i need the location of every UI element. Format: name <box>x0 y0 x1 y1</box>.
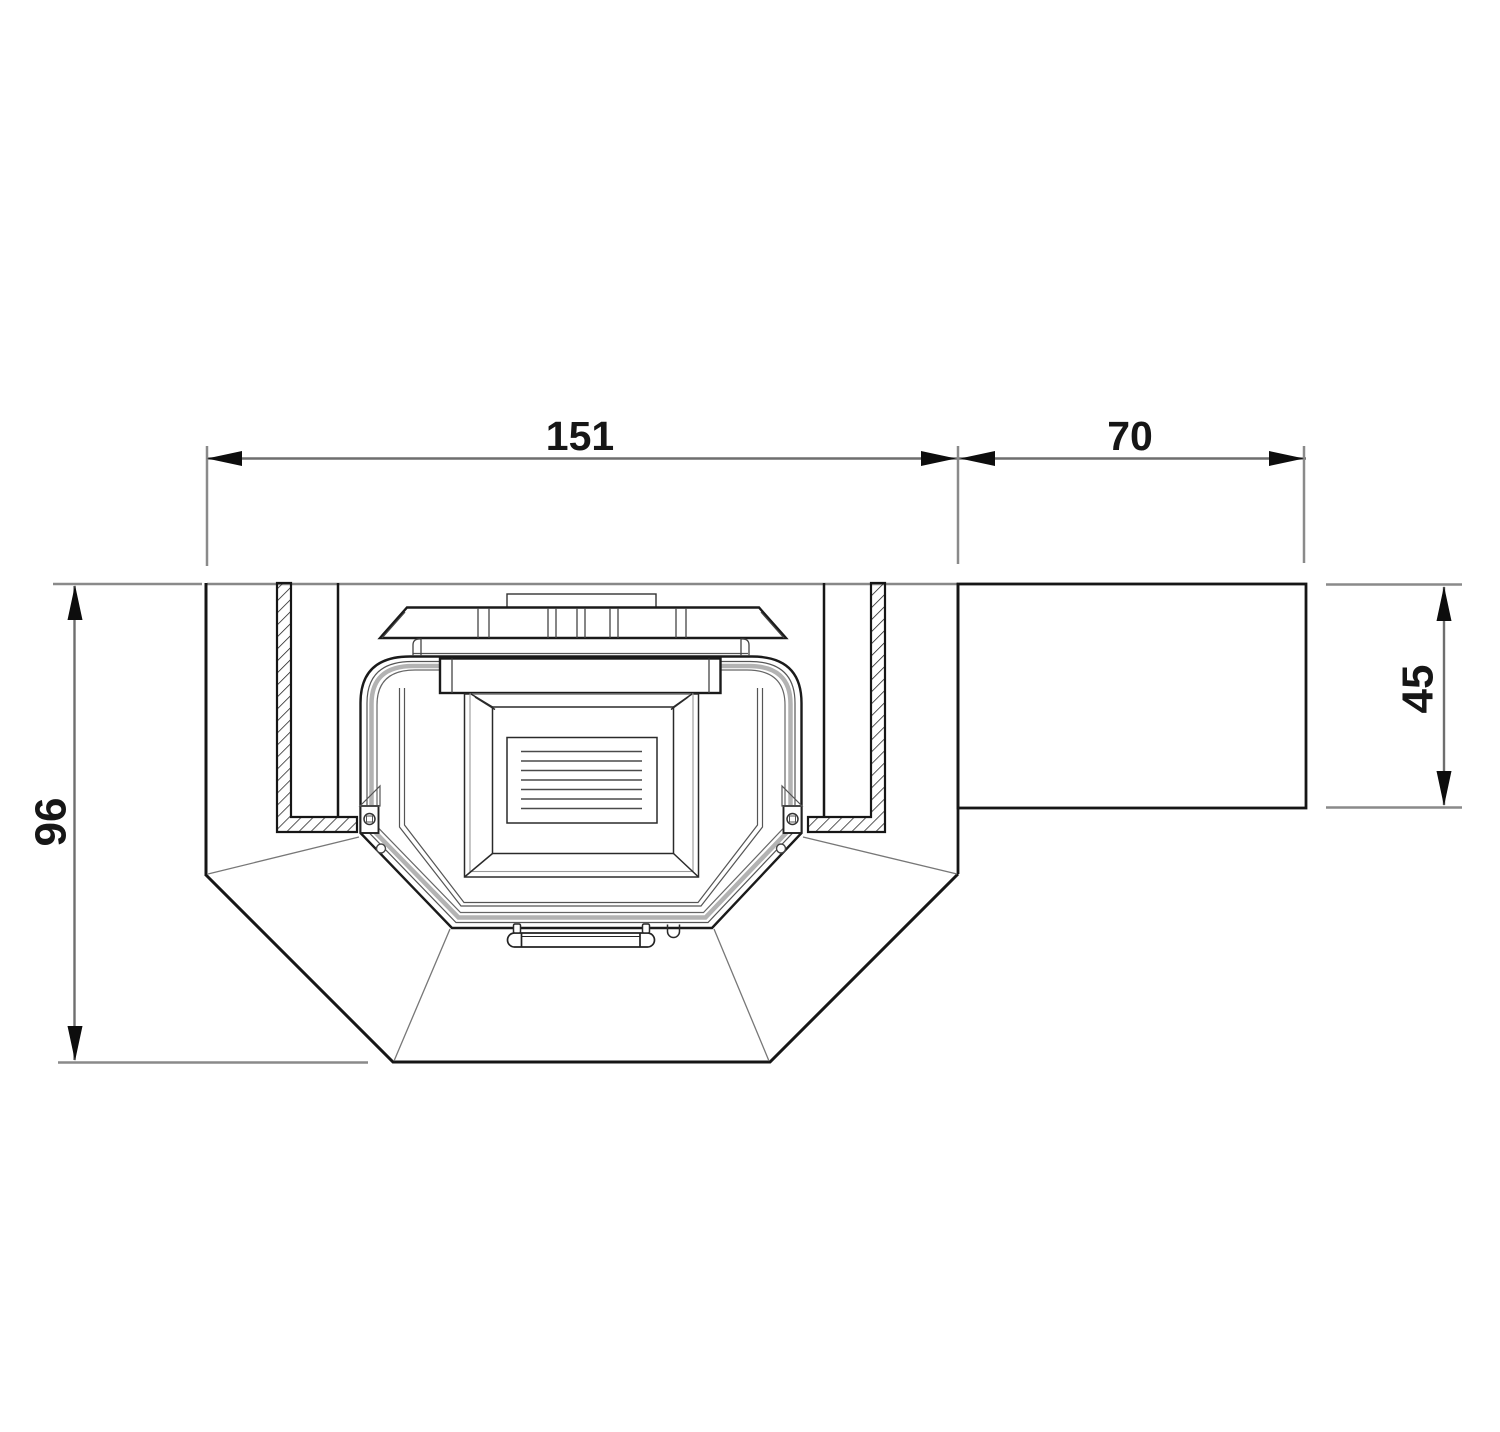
svg-text:96: 96 <box>27 798 76 847</box>
svg-text:70: 70 <box>1107 413 1153 459</box>
svg-text:151: 151 <box>546 413 614 459</box>
svg-text:45: 45 <box>1394 665 1443 714</box>
